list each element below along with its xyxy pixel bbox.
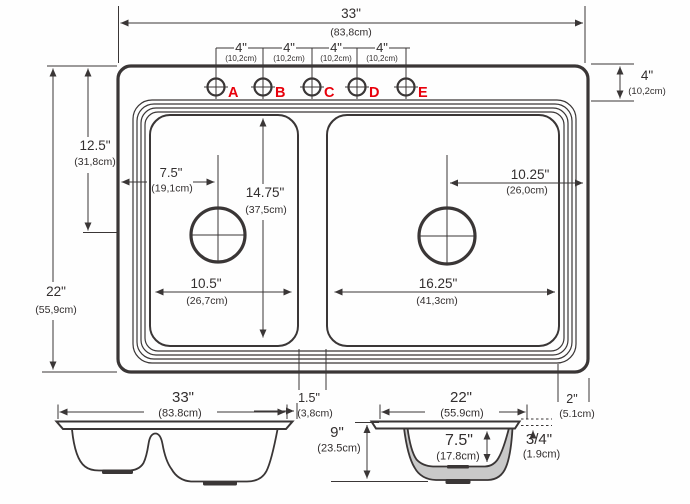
dim-75b-metric: (17.8cm) [436,451,479,463]
dim-2-imperial: 2" [566,392,577,406]
side-left-drain [102,470,133,475]
dim-4-cd-metric: (10,2cm) [320,54,352,63]
dim-9-imperial: 9" [330,424,344,441]
dim-33-imperial: 33" [341,6,361,21]
right-bowl [327,115,559,346]
dim-34-metric: (1.9cm) [523,449,560,461]
left-bowl [150,115,298,346]
dim-1025-imperial: 10.25" [511,167,550,182]
diagram-canvas: A B C D E 33" (83,8cm) 4" (10,2cm) 4" (1… [0,0,690,504]
section-rim [372,422,520,429]
dim-22b-imperial: 22" [450,389,472,406]
dim-1475-imperial: 14.75" [246,185,285,200]
dim-right-drain-offset-1025: 10.25" (26,0cm) [450,167,583,197]
dim-22-imperial: 22" [46,284,66,299]
left-drain [190,155,246,262]
dim-125-metric: (31,8cm) [74,156,115,168]
dim-left-drain-offset-75: 7.5" (19,1cm) [122,165,215,195]
dim-105-metric: (26,7cm) [186,295,227,307]
dim-4-ab-metric: (10,2cm) [225,54,257,63]
dim-4r-imperial: 4" [641,68,654,83]
dim-34-imperial: 3/4" [526,431,552,448]
hole-label-a: A [228,85,239,101]
dim-4-bc-imperial: 4" [283,40,295,55]
dim-75b-imperial: 7.5" [445,432,473,449]
dim-right-bowl-width-1625: 16.25" (41,3cm) [335,276,556,307]
dim-drain-depth-125: 12.5" (31,8cm) [74,69,117,233]
dim-1475-metric: (37,5cm) [245,204,286,216]
dim-4r-metric: (10,2cm) [628,86,665,97]
hole-label-b: B [275,85,285,101]
dim-deck-offset-4-right: 4" (10,2cm) [591,64,666,101]
hole-label-c: C [324,85,335,101]
dim-22-metric: (55,9cm) [35,304,76,316]
dim-1625-metric: (41,3cm) [416,295,457,307]
sink-dimension-diagram: A B C D E 33" (83,8cm) 4" (10,2cm) 4" (1… [0,0,690,504]
dim-4-cd-imperial: 4" [330,40,342,55]
dim-4-de-metric: (10,2cm) [366,54,398,63]
dim-75-imperial: 7.5" [160,165,183,180]
dim-33-metric: (83,8cm) [330,27,371,39]
side-view: 33" (83.8cm) [57,389,293,486]
dim-1025-metric: (26,0cm) [506,185,547,197]
hole-label-e: E [418,85,428,101]
dim-4-de-imperial: 4" [376,40,388,55]
top-view: A B C D E [118,66,588,372]
dim-33b-imperial: 33" [172,389,194,406]
dim-33b-metric: (83.8cm) [158,408,201,420]
section-drain-outer [446,479,471,484]
dim-22b-metric: (55.9cm) [440,408,483,420]
dim-75-metric: (19,1cm) [151,183,192,195]
right-drain [418,155,476,264]
dim-105-imperial: 10.5" [190,276,221,291]
dim-section-height-9: 9" (23.5cm) [317,423,379,479]
dim-rim-thickness-34: 3/4" (1.9cm) [521,419,560,461]
sink-rim-lines [133,100,576,363]
dim-4-bc-metric: (10,2cm) [273,54,305,63]
side-right-drain [203,481,237,486]
dim-15-imperial: 1.5" [298,391,320,405]
dim-9-metric: (23.5cm) [317,443,360,455]
dim-left-bowl-width-105: 10.5" (26,7cm) [156,276,292,307]
dim-4-ab-imperial: 4" [235,40,247,55]
dim-125-imperial: 12.5" [79,138,110,153]
dim-1625-imperial: 16.25" [419,276,458,291]
dim-section-width-22: 22" (55.9cm) [380,389,527,420]
dim-overall-depth-22: 22" (55,9cm) [35,66,117,372]
dim-side-width-33: 33" (83.8cm) [58,389,287,420]
section-view: 22" (55.9cm) 9" (23.5cm) 7.5" (17.8cm) 3… [317,389,560,484]
side-rim [57,422,293,430]
dim-left-bowl-length-1475: 14.75" (37,5cm) [245,119,286,338]
hole-label-d: D [369,85,379,101]
dim-15-metric: (3,8cm) [297,408,333,420]
dim-2-metric: (5.1cm) [559,408,595,420]
dim-hole-spacing-brackets: 4" (10,2cm) 4" (10,2cm) 4" (10,2cm) 4" (… [216,40,410,79]
section-drain-inner [447,465,469,469]
